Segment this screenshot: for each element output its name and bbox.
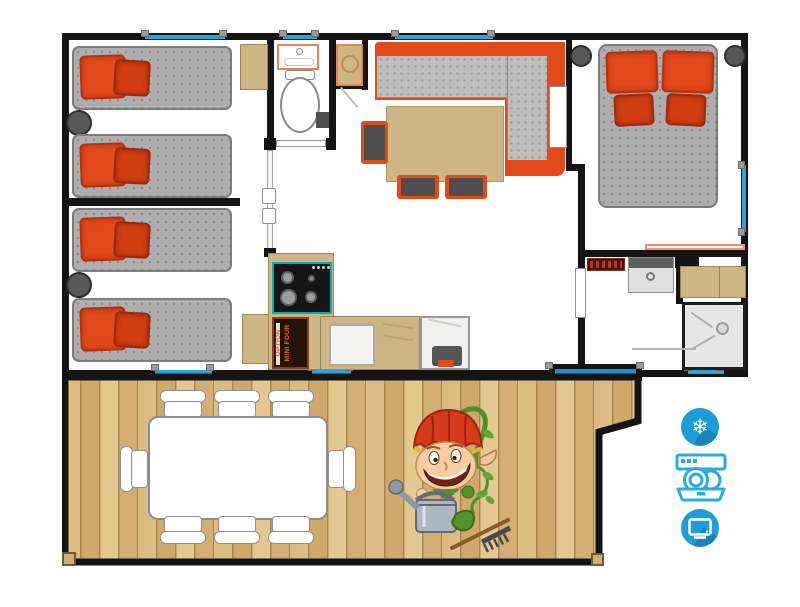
option-label-line1: OPTION <box>275 319 284 367</box>
wardrobe <box>240 44 268 90</box>
radiator-fins <box>590 261 622 268</box>
spout-rose <box>389 480 403 494</box>
wardrobe <box>242 314 270 364</box>
outdoor-chair-back <box>268 531 314 544</box>
hob-knob <box>312 266 315 269</box>
window-latch <box>279 30 287 37</box>
pillow <box>113 221 151 259</box>
wardrobe-rail <box>645 244 745 250</box>
mini-oven-option-label: OPTION MINI FOUR <box>275 319 305 367</box>
elf-shoe <box>452 511 474 531</box>
wall-wc-left <box>267 40 274 144</box>
fridge-reflection <box>428 318 462 327</box>
window-latch <box>738 161 745 169</box>
fridge <box>420 316 470 370</box>
pillow <box>113 147 151 185</box>
vine-leaf <box>484 494 496 505</box>
nightstand <box>570 45 592 67</box>
window-latch <box>391 30 399 37</box>
burner <box>305 291 317 303</box>
option-label-line2: MINI FOUR <box>284 319 293 367</box>
burner <box>280 289 297 306</box>
shower <box>682 302 746 370</box>
bathroom-door-line <box>632 348 696 350</box>
nightstand <box>724 45 746 67</box>
hob-knob <box>317 266 320 269</box>
counter-line <box>383 323 413 329</box>
wardrobe-divider <box>719 267 720 297</box>
single-bed <box>72 208 232 272</box>
basin-bowl <box>341 55 359 73</box>
dining-table <box>386 106 504 182</box>
nightstand <box>66 110 92 136</box>
chair-seat <box>449 178 483 196</box>
burner <box>281 271 294 284</box>
outdoor-chair-back <box>160 531 206 544</box>
deck-corner-post <box>591 553 604 566</box>
pillow <box>113 311 151 349</box>
kitchen-counter <box>320 316 420 370</box>
window-latch <box>219 30 227 37</box>
side-table <box>549 86 567 148</box>
tv-icon <box>688 518 712 539</box>
double-bed <box>598 44 718 208</box>
sliding-door-handle <box>262 208 276 224</box>
bathroom-door-leaf <box>575 268 586 318</box>
window-latch <box>151 364 159 371</box>
wall-wc-right <box>329 40 336 148</box>
window-top-3 <box>395 35 493 39</box>
bathroom-washbasin <box>628 257 674 293</box>
snowflake-icon: ❄ <box>691 417 709 438</box>
deck-corner-post <box>62 552 76 566</box>
floor-plan: OPTION MINI FOUR <box>0 0 800 607</box>
elf-pupil <box>452 456 456 460</box>
pillow <box>113 59 151 97</box>
outdoor-chair-seat <box>131 450 148 488</box>
basin-cabinet <box>336 44 363 86</box>
faucet-icon <box>646 272 655 281</box>
mini-oven-option-box: OPTION MINI FOUR <box>272 317 309 369</box>
kitchen-sink <box>329 324 375 366</box>
dining-chair <box>397 175 439 199</box>
corner-sofa-seat-arm <box>507 56 547 160</box>
wall-junction-wc-right <box>326 138 336 150</box>
window-latch <box>206 364 214 371</box>
toilet <box>280 77 320 133</box>
window-latch <box>311 30 319 37</box>
counter-line <box>383 335 413 341</box>
pillow <box>665 93 707 127</box>
elf-pupil <box>433 458 437 462</box>
window-latch <box>487 30 495 37</box>
outdoor-chair-back <box>214 531 260 544</box>
wall-bedroom-divider <box>62 198 240 206</box>
window-right <box>742 165 746 232</box>
wc-washbasin <box>277 44 319 70</box>
single-bed <box>72 46 232 110</box>
wall-bedroom-bathroom <box>585 250 748 257</box>
wall-bedroom-living-upper <box>578 164 585 268</box>
dining-chair <box>445 175 487 199</box>
dishwasher-icon <box>673 452 729 502</box>
fridge-handle <box>438 360 454 367</box>
basin-backsplash <box>629 258 673 268</box>
window-latch <box>636 362 644 369</box>
air-conditioning-badge: ❄ <box>681 408 719 446</box>
wc-door <box>276 140 326 147</box>
towel-radiator <box>587 258 625 271</box>
window-top-1 <box>145 35 225 39</box>
faucet-icon <box>296 48 303 55</box>
hob-knob <box>322 266 325 269</box>
waste-bin <box>316 112 329 128</box>
tv-badge <box>681 509 719 547</box>
nightstand <box>66 272 92 298</box>
dining-chair <box>361 121 388 164</box>
hob-knob <box>327 266 330 269</box>
single-bed <box>72 134 232 198</box>
basin-line <box>284 58 314 66</box>
window-latch <box>141 30 149 37</box>
gardener-elf-mascot <box>386 402 514 566</box>
chair-seat <box>364 125 385 160</box>
sliding-door-handle <box>262 188 276 204</box>
pillow <box>613 93 655 127</box>
hob <box>272 262 332 314</box>
shower-drain <box>716 322 729 335</box>
pillow <box>661 50 714 94</box>
window-latch <box>738 228 745 236</box>
elf-ear <box>480 450 496 465</box>
bathroom-wardrobe <box>680 266 746 298</box>
elf-eye <box>429 452 439 465</box>
elf-eye <box>451 450 461 463</box>
window-latch <box>545 362 553 369</box>
chair-seat <box>401 178 435 196</box>
elf-glove <box>462 486 474 498</box>
outdoor-table <box>148 416 328 520</box>
wall-junction-wc <box>264 138 276 150</box>
outdoor-chair-back <box>343 446 356 492</box>
burner <box>308 275 315 282</box>
single-bed <box>72 298 232 362</box>
shower-line <box>691 312 713 329</box>
pillow <box>605 50 658 94</box>
